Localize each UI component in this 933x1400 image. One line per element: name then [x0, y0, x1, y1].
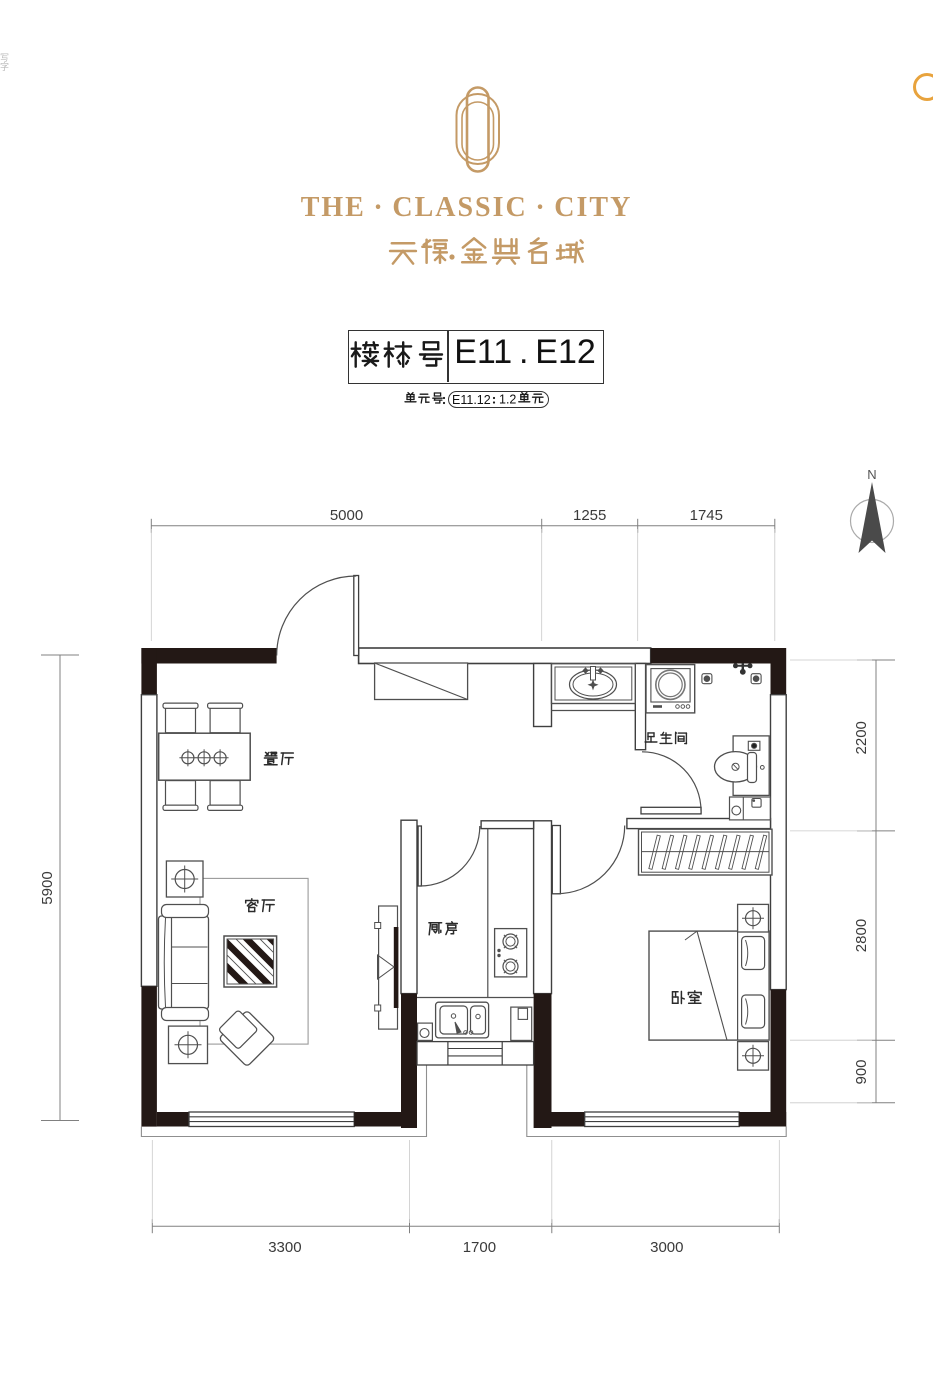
svg-text:3300: 3300 — [268, 1239, 301, 1256]
svg-text:2200: 2200 — [853, 721, 870, 754]
svg-text:2800: 2800 — [853, 919, 870, 952]
svg-text:900: 900 — [853, 1059, 870, 1084]
svg-text:N: N — [867, 467, 876, 482]
svg-text:1255: 1255 — [573, 507, 606, 524]
svg-text:3000: 3000 — [650, 1239, 683, 1256]
svg-text:1745: 1745 — [690, 507, 723, 524]
svg-text:1700: 1700 — [463, 1239, 496, 1256]
svg-text:5900: 5900 — [39, 871, 56, 904]
svg-text:5000: 5000 — [330, 507, 363, 524]
